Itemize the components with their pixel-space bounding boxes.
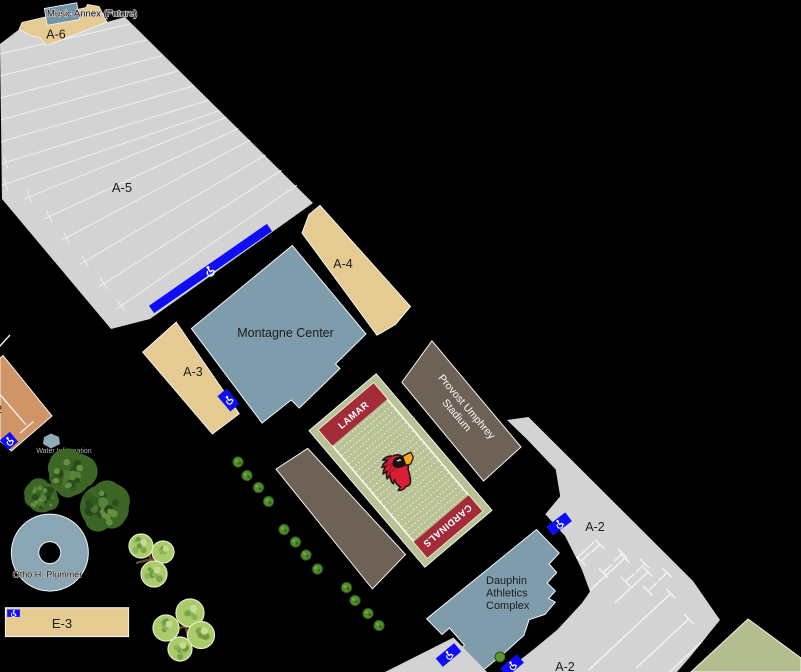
svg-text:Complex: Complex bbox=[486, 600, 530, 612]
svg-text:2: 2 bbox=[0, 404, 2, 416]
svg-text:Dauphin: Dauphin bbox=[486, 575, 527, 587]
svg-text:A-2: A-2 bbox=[555, 660, 575, 672]
svg-text:Otho H. Plummer: Otho H. Plummer bbox=[13, 570, 83, 580]
svg-text:Montagne Center: Montagne Center bbox=[237, 326, 334, 340]
svg-text:A-6: A-6 bbox=[46, 28, 66, 42]
svg-text:Music Annex (Future): Music Annex (Future) bbox=[47, 8, 137, 19]
svg-text:Athletics: Athletics bbox=[486, 588, 528, 600]
svg-text:A-4: A-4 bbox=[333, 257, 353, 271]
svg-text:A-3: A-3 bbox=[183, 365, 203, 379]
svg-text:A-2: A-2 bbox=[585, 520, 605, 534]
svg-text:A-5: A-5 bbox=[112, 180, 132, 195]
svg-text:E-3: E-3 bbox=[52, 616, 72, 631]
